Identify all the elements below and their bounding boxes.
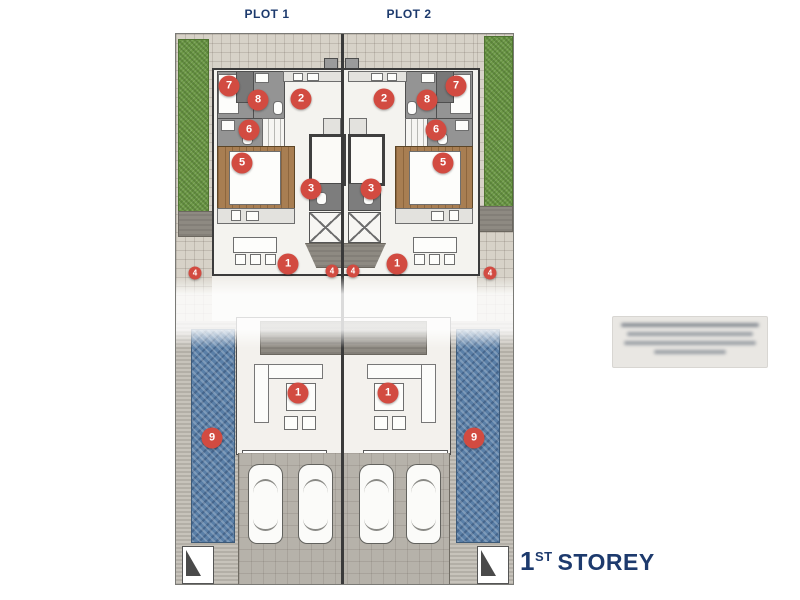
blurred-legend-line bbox=[624, 341, 756, 345]
room-marker-4: 4 bbox=[484, 267, 497, 280]
floor-plan: 7788226655331144441199 bbox=[175, 33, 514, 585]
blurred-legend-line bbox=[621, 323, 759, 327]
storey-title: 1ST STOREY bbox=[520, 546, 655, 577]
room-marker-5: 5 bbox=[232, 153, 253, 174]
plot-1-label: PLOT 1 bbox=[232, 7, 302, 21]
floor-plan-page: { "labels": { "plot1": "PLOT 1", "plot2"… bbox=[0, 0, 800, 600]
storey-word: STOREY bbox=[558, 549, 655, 575]
room-marker-5: 5 bbox=[433, 153, 454, 174]
room-marker-7: 7 bbox=[446, 76, 467, 97]
room-marker-6: 6 bbox=[239, 120, 260, 141]
markers-layer: 7788226655331144441199 bbox=[176, 34, 513, 584]
blurred-legend-line bbox=[627, 332, 753, 336]
room-marker-3: 3 bbox=[301, 179, 322, 200]
storey-ordinal-suffix: ST bbox=[535, 549, 553, 564]
room-marker-4: 4 bbox=[326, 265, 339, 278]
room-marker-8: 8 bbox=[417, 90, 438, 111]
room-marker-1: 1 bbox=[288, 383, 309, 404]
room-marker-9: 9 bbox=[202, 428, 223, 449]
room-marker-2: 2 bbox=[374, 89, 395, 110]
room-marker-4: 4 bbox=[347, 265, 360, 278]
room-marker-8: 8 bbox=[248, 90, 269, 111]
storey-number: 1 bbox=[520, 546, 535, 576]
room-marker-4: 4 bbox=[189, 267, 202, 280]
plot-2-label: PLOT 2 bbox=[374, 7, 444, 21]
room-marker-6: 6 bbox=[426, 120, 447, 141]
room-marker-7: 7 bbox=[219, 76, 240, 97]
room-marker-9: 9 bbox=[464, 428, 485, 449]
room-marker-1: 1 bbox=[387, 254, 408, 275]
blurred-legend-line bbox=[654, 350, 726, 354]
room-marker-3: 3 bbox=[361, 179, 382, 200]
room-marker-1: 1 bbox=[278, 254, 299, 275]
blurred-legend-box bbox=[612, 316, 768, 368]
room-marker-1: 1 bbox=[378, 383, 399, 404]
room-marker-2: 2 bbox=[291, 89, 312, 110]
